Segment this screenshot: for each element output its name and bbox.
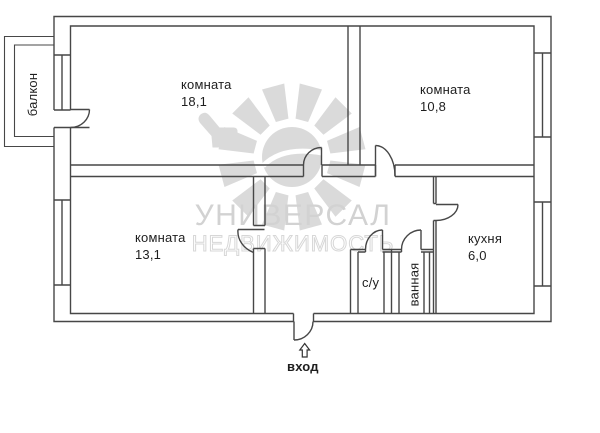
room1-label: комната 18,1 <box>181 76 232 110</box>
entrance-label: вход <box>287 358 319 375</box>
balcony-label: балкон <box>24 68 41 121</box>
interior-walls <box>71 26 535 314</box>
exterior-walls <box>54 17 551 322</box>
room2-label: комната 10,8 <box>420 81 471 115</box>
floorplan: УНИВЕРСАЛ НЕДВИЖИМОСТЬ комната 18,1 комн… <box>0 0 600 433</box>
kitchen-area: 6,0 <box>468 247 502 264</box>
room1-area: 18,1 <box>181 93 232 110</box>
bathroom-label: ванная <box>406 258 423 312</box>
room3-label: комната 13,1 <box>135 229 186 263</box>
door-arcs <box>71 110 459 341</box>
door-leaves <box>54 110 458 341</box>
room2-name: комната <box>420 82 471 97</box>
room2-area: 10,8 <box>420 98 471 115</box>
entrance-arrow-icon <box>300 344 310 358</box>
room3-name: комната <box>135 230 186 245</box>
room1-name: комната <box>181 77 232 92</box>
kitchen-name: кухня <box>468 231 502 246</box>
room3-area: 13,1 <box>135 246 186 263</box>
kitchen-label: кухня 6,0 <box>468 230 502 264</box>
toilet-label: с/у <box>362 274 379 291</box>
